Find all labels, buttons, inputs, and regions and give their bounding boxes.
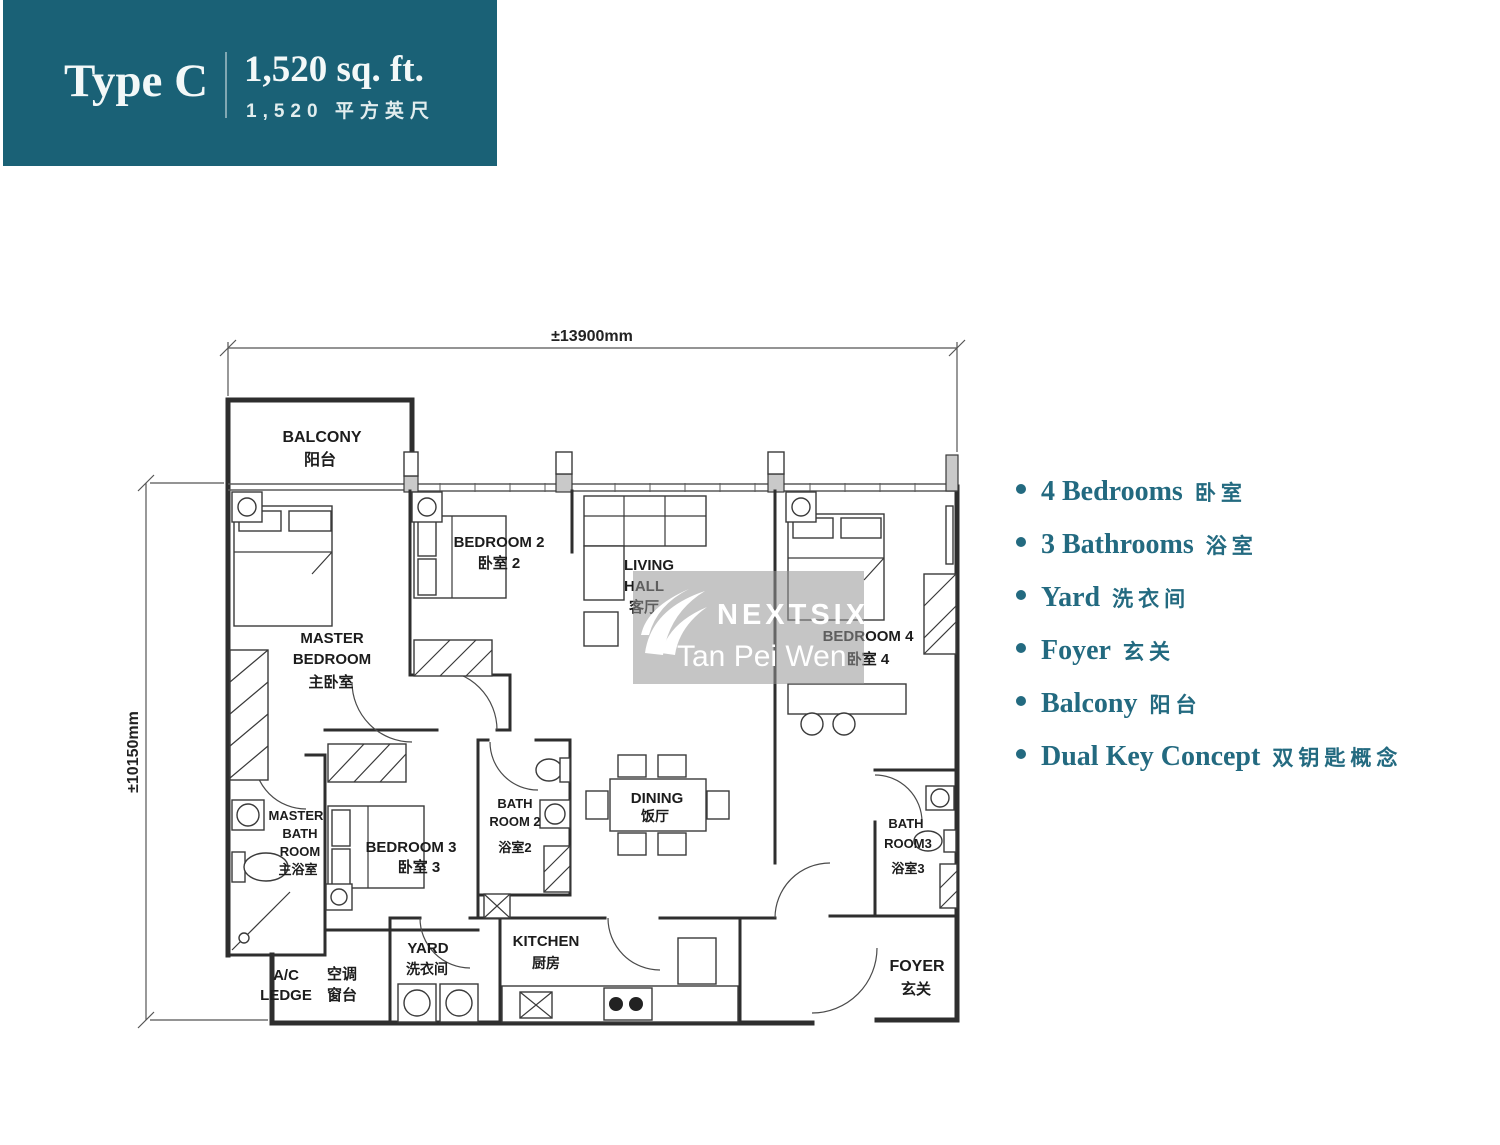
foyer-label: FOYER: [889, 958, 945, 975]
master-bath-label-zh: 主浴室: [278, 862, 317, 877]
feature-text-zh: 双钥匙概念: [1272, 747, 1402, 770]
watermark-brand: NEXTSIX: [717, 599, 869, 632]
bathroom2-label-zh: 浴室2: [498, 840, 531, 855]
master-bedroom-label-zh: 主卧室: [308, 673, 353, 691]
master-bath-label-3: ROOM: [280, 844, 320, 859]
feature-text-zh: 阳台: [1149, 694, 1201, 717]
plan-type-header: Type C 1,520 sq. ft. 1,520 平方英尺: [3, 0, 497, 166]
bedroom3-label: BEDROOM 3: [366, 839, 457, 856]
yard-label-zh: 洗衣间: [406, 961, 448, 977]
master-bath-label-2: BATH: [282, 826, 317, 841]
bathroom2-fixtures-icon: [536, 758, 570, 892]
master-bed-icon: [234, 506, 332, 626]
feature-text: 4 Bedrooms: [1041, 476, 1183, 507]
floorplan-page: Type C 1,520 sq. ft. 1,520 平方英尺 ±13900mm…: [0, 0, 1500, 1145]
bullet-icon: [1016, 749, 1026, 759]
bathroom3-label-2: ROOM3: [884, 836, 932, 851]
bedroom4-wardrobe-icon: [924, 506, 956, 654]
bathroom2-label-2: ROOM 2: [489, 814, 540, 829]
feature-text-zh: 浴室: [1206, 535, 1258, 558]
dining-label: DINING: [631, 790, 684, 807]
bullet-icon: [1016, 643, 1026, 653]
window-wall: [228, 452, 958, 492]
feature-text-zh: 玄关: [1123, 641, 1175, 664]
bullet-icon: [1016, 537, 1026, 547]
feature-item-bathrooms: 3 Bathrooms浴室: [1016, 529, 1402, 561]
feature-item-foyer: Foyer玄关: [1016, 635, 1402, 667]
bedroom2-label: BEDROOM 2: [454, 534, 545, 551]
bathroom3-label-1: BATH: [888, 816, 923, 831]
bullet-icon: [1016, 590, 1026, 600]
header-divider: [225, 52, 227, 118]
width-dimension-label: ±13900mm: [551, 328, 633, 345]
bedroom3-label-zh: 卧室 3: [398, 858, 441, 876]
balcony-label-zh: 阳台: [304, 450, 336, 469]
kitchen-label: KITCHEN: [513, 933, 580, 950]
height-dimension-label: ±10150mm: [125, 711, 142, 793]
foyer-label-zh: 玄关: [901, 980, 931, 998]
service-shaft-icon: [484, 894, 510, 918]
feature-item-balcony: Balcony阳台: [1016, 688, 1402, 720]
master-bedroom-label-1: MASTER: [300, 630, 364, 647]
bathroom2-label-1: BATH: [497, 796, 532, 811]
ac-ledge-label-zh1: 空调: [327, 965, 357, 983]
plan-type-label: Type C: [61, 54, 211, 108]
watermark-panel: NEXTSIX Tan Pei Wen: [633, 571, 864, 684]
washing-machines-icon: [398, 984, 478, 1022]
bedroom3-wardrobe-icon: [328, 744, 406, 782]
feature-text-zh: 卧室: [1195, 482, 1247, 505]
bathroom3-label-zh: 浴室3: [891, 861, 924, 876]
bedroom2-label-zh: 卧室 2: [478, 554, 521, 572]
watermark-agent: Tan Pei Wen: [677, 640, 847, 674]
bedroom2-wardrobe-icon: [414, 640, 492, 676]
dining-label-zh: 饭厅: [640, 808, 669, 824]
master-bedroom-label-2: BEDROOM: [293, 651, 371, 668]
ac-ledge-label-zh2: 窗台: [327, 986, 357, 1004]
master-wardrobe-icon: [230, 650, 268, 780]
ac-ledge-label-2: LEDGE: [260, 987, 312, 1004]
feature-text: Yard: [1041, 582, 1100, 613]
feature-item-bedrooms: 4 Bedrooms卧室: [1016, 476, 1402, 508]
feature-item-dual-key: Dual Key Concept双钥匙概念: [1016, 741, 1402, 773]
area-sqft-label: 1,520 sq. ft.: [244, 48, 424, 91]
kitchen-label-zh: 厨房: [532, 955, 560, 971]
bedroom4-desk-icon: [788, 684, 906, 735]
balcony-label: BALCONY: [282, 429, 361, 446]
master-bath-label-1: MASTER: [269, 808, 325, 823]
feature-text-zh: 洗衣间: [1112, 588, 1190, 611]
bullet-icon: [1016, 484, 1026, 494]
bullet-icon: [1016, 696, 1026, 706]
feature-item-yard: Yard洗衣间: [1016, 582, 1402, 614]
ac-ledge-label-1: A/C: [273, 967, 299, 984]
floor-plan: ±13900mm ±10150mm: [120, 320, 1000, 1050]
yard-label: YARD: [407, 940, 448, 957]
feature-list: 4 Bedrooms卧室 3 Bathrooms浴室 Yard洗衣间 Foyer…: [1016, 476, 1402, 794]
feature-text: Dual Key Concept: [1041, 741, 1260, 772]
feature-text: 3 Bathrooms: [1041, 529, 1194, 560]
area-sqft-label-zh: 1,520 平方英尺: [246, 96, 435, 123]
feature-text: Foyer: [1041, 635, 1111, 666]
feature-text: Balcony: [1041, 688, 1137, 719]
